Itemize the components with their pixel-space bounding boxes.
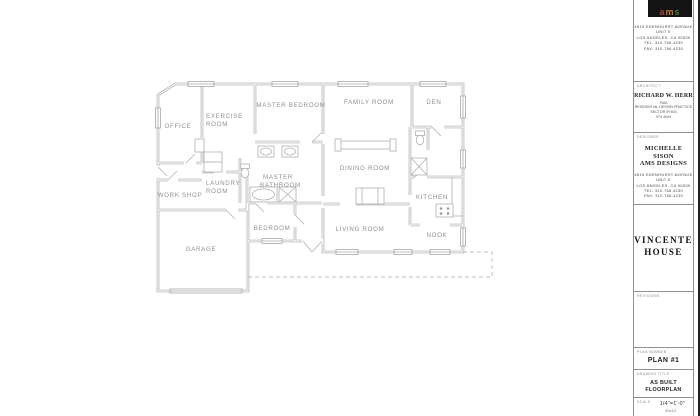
patio-dashed-outline	[248, 252, 492, 277]
room-label-office: OFFICE	[165, 123, 192, 130]
firm-address: 4619 EDENHURST AVENUE UNIT E LOS ANGELES…	[634, 24, 693, 51]
room-label-living-room: LIVING ROOM	[336, 226, 385, 233]
water-heater	[195, 139, 204, 152]
room-label-laundry-room-2: ROOM	[206, 188, 228, 195]
plan-number-section: PLAN NUMBER PLAN #1	[634, 348, 693, 370]
shelving	[204, 162, 222, 172]
drawing-title-section-label: DRAWING TITLE	[637, 372, 693, 376]
ams-logo-letter: m	[665, 7, 674, 17]
scale-value: 1/4"=1'-0"	[660, 401, 685, 407]
room-label-master-bedroom: MASTER BEDROOM	[256, 102, 325, 109]
plan-number-value: PLAN #1	[634, 357, 693, 364]
project-name: VINCENTE HOUSE	[634, 235, 693, 258]
wall-inner-lines	[158, 84, 463, 291]
ams-logo: ams	[648, 0, 692, 17]
shower-icon	[279, 187, 296, 202]
architect-section: ARCHITECT RICHARD W. HERR FAIA RESIDENTI…	[634, 82, 693, 133]
project-name-line: VINCENTE	[634, 235, 693, 247]
room-label-exercise-room-2: ROOM	[206, 121, 228, 128]
shelving	[204, 152, 222, 162]
designer-section-label: DESIGNER	[637, 135, 693, 139]
stove-icon	[436, 204, 453, 217]
room-label-laundry-room: LAUNDRY	[206, 180, 240, 187]
room-label-master-bathroom-2: BATHROOM	[260, 182, 301, 189]
sink-icon	[282, 146, 298, 157]
title-block-firm-section: ams 4619 EDENHURST AVENUE UNIT E LOS ANG…	[634, 0, 693, 82]
room-label-bedroom: BEDROOM	[254, 225, 291, 232]
architect-name: RICHARD W. HERR	[634, 93, 693, 99]
room-label-family-room: FAMILY ROOM	[344, 99, 394, 106]
room-label-den: DEN	[426, 99, 441, 106]
bathtub-icon	[250, 187, 277, 202]
room-label-master-bathroom: MASTER	[263, 174, 293, 181]
sink-icon	[258, 146, 274, 157]
ams-logo-letter: s	[675, 7, 681, 17]
designer-section: DESIGNER MICHELLE SISON AMS DESIGNS 4619…	[634, 133, 693, 205]
title-block: ams 4619 EDENHURST AVENUE UNIT E LOS ANG…	[633, 0, 694, 416]
floor-plan-drawing: OFFICE EXERCISE ROOM MASTER BEDROOM FAMI…	[0, 0, 700, 416]
drawing-title-line: AS BUILT	[634, 380, 693, 387]
scale-section-label: SCALE	[637, 400, 650, 404]
room-label-work-shop: WORK SHOP	[158, 192, 203, 199]
buffet-cabinet	[335, 139, 396, 151]
designer-address: 4619 EDENHURST AVENUE UNIT E LOS ANGELES…	[634, 172, 693, 199]
drawing-sheet: OFFICE EXERCISE ROOM MASTER BEDROOM FAMI…	[0, 0, 700, 416]
designer-address-line: FAX: 310.766.4230	[634, 193, 693, 198]
toilet-icon	[241, 164, 250, 178]
toilet-icon	[416, 131, 425, 145]
drawing-title-line: FLOORPLAN	[634, 387, 693, 394]
scale-note: 20x13	[634, 408, 693, 413]
drawing-title: AS BUILT FLOORPLAN	[634, 380, 693, 393]
drawing-title-section: DRAWING TITLE AS BUILT FLOORPLAN	[634, 370, 693, 398]
architect-detail-line: 973 4044	[634, 115, 693, 120]
wall-outlines	[158, 84, 463, 291]
room-label-kitchen: KITCHEN	[416, 194, 448, 201]
room-label-exercise-room: EXERCISE	[206, 113, 243, 120]
architect-details: FAIA RESIDENTIAL DESIGN PRACTICE SECTOR …	[634, 101, 693, 120]
revisions-section-label: REVISIONS	[637, 294, 693, 298]
architect-section-label: ARCHITECT	[637, 84, 693, 88]
scale-section: SCALE 1/4"=1'-0" 20x13	[634, 398, 693, 416]
room-label-dining-room: DINING ROOM	[340, 165, 390, 172]
project-section: VINCENTE HOUSE	[634, 205, 693, 292]
revisions-section: REVISIONS	[634, 292, 693, 348]
room-label-garage: GARAGE	[186, 246, 217, 253]
shower-icon	[411, 158, 427, 175]
designer-name-line: MICHELLE SISON	[634, 145, 693, 160]
plan-number-section-label: PLAN NUMBER	[637, 350, 693, 354]
project-name-line: HOUSE	[634, 247, 693, 259]
kitchen-counter	[452, 177, 463, 216]
fireplace	[356, 188, 384, 204]
firm-address-line: FAX: 310.766.4230	[634, 46, 693, 51]
designer-name: MICHELLE SISON AMS DESIGNS	[634, 145, 693, 168]
designer-name-line: AMS DESIGNS	[634, 160, 693, 168]
room-label-nook: NOOK	[426, 232, 447, 239]
